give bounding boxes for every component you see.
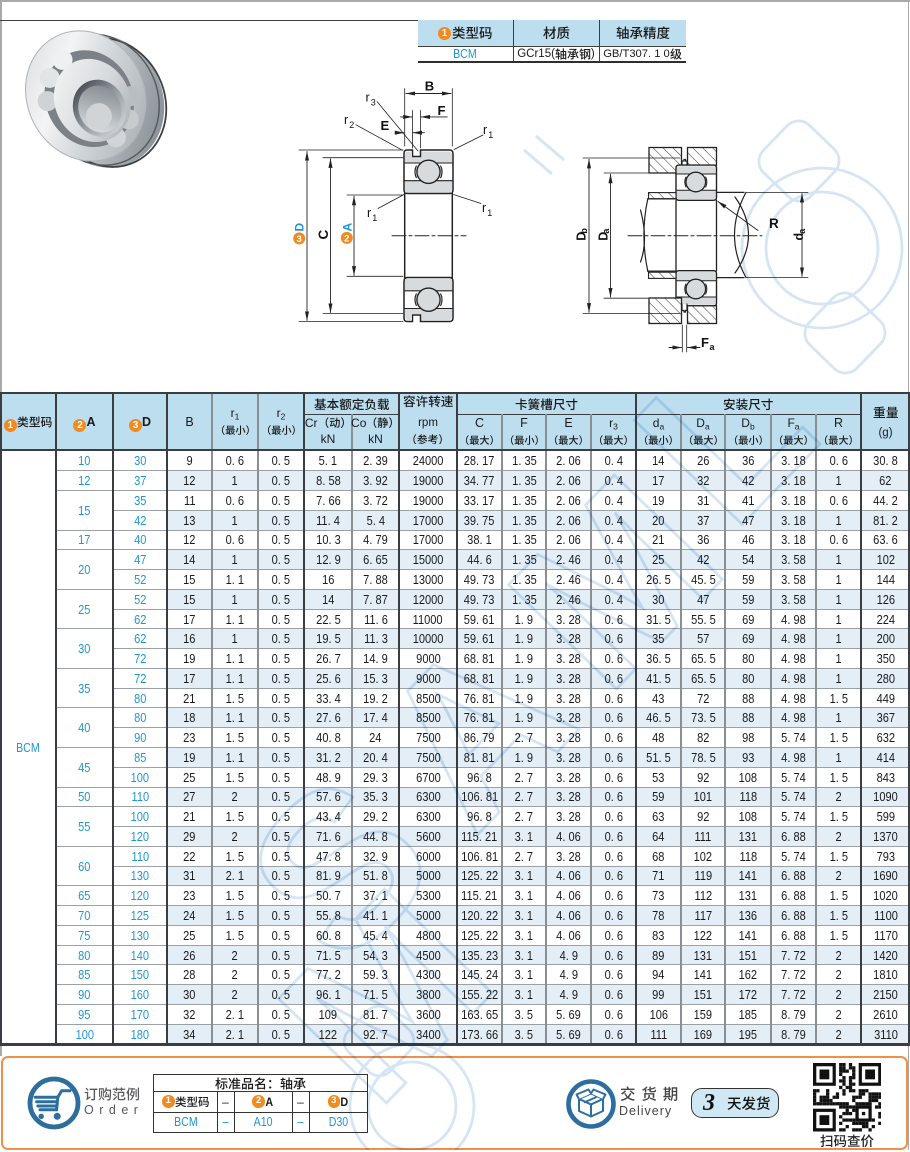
svg-text:3: 3 [371,98,376,108]
svg-text:R: R [769,216,779,231]
svg-text:D: D [293,223,307,232]
svg-text:a: a [710,342,716,352]
svg-text:1: 1 [487,208,492,218]
svg-text:2: 2 [344,233,349,244]
svg-text:1: 1 [488,130,493,140]
svg-text:F: F [438,103,446,118]
svg-text:C: C [316,230,331,240]
svg-text:r: r [367,206,371,220]
svg-text:2: 2 [349,120,354,130]
svg-text:A: A [340,223,354,232]
svg-text:B: B [425,80,434,94]
svg-text:r: r [482,201,486,215]
svg-text:r: r [366,91,370,105]
svg-text:F: F [701,335,709,350]
svg-text:r: r [483,123,487,137]
svg-text:1: 1 [372,213,377,223]
svg-text:E: E [381,118,390,133]
svg-text:a: a [601,228,611,234]
svg-text:3: 3 [297,234,302,245]
svg-text:b: b [579,228,589,234]
svg-text:r: r [344,113,348,127]
